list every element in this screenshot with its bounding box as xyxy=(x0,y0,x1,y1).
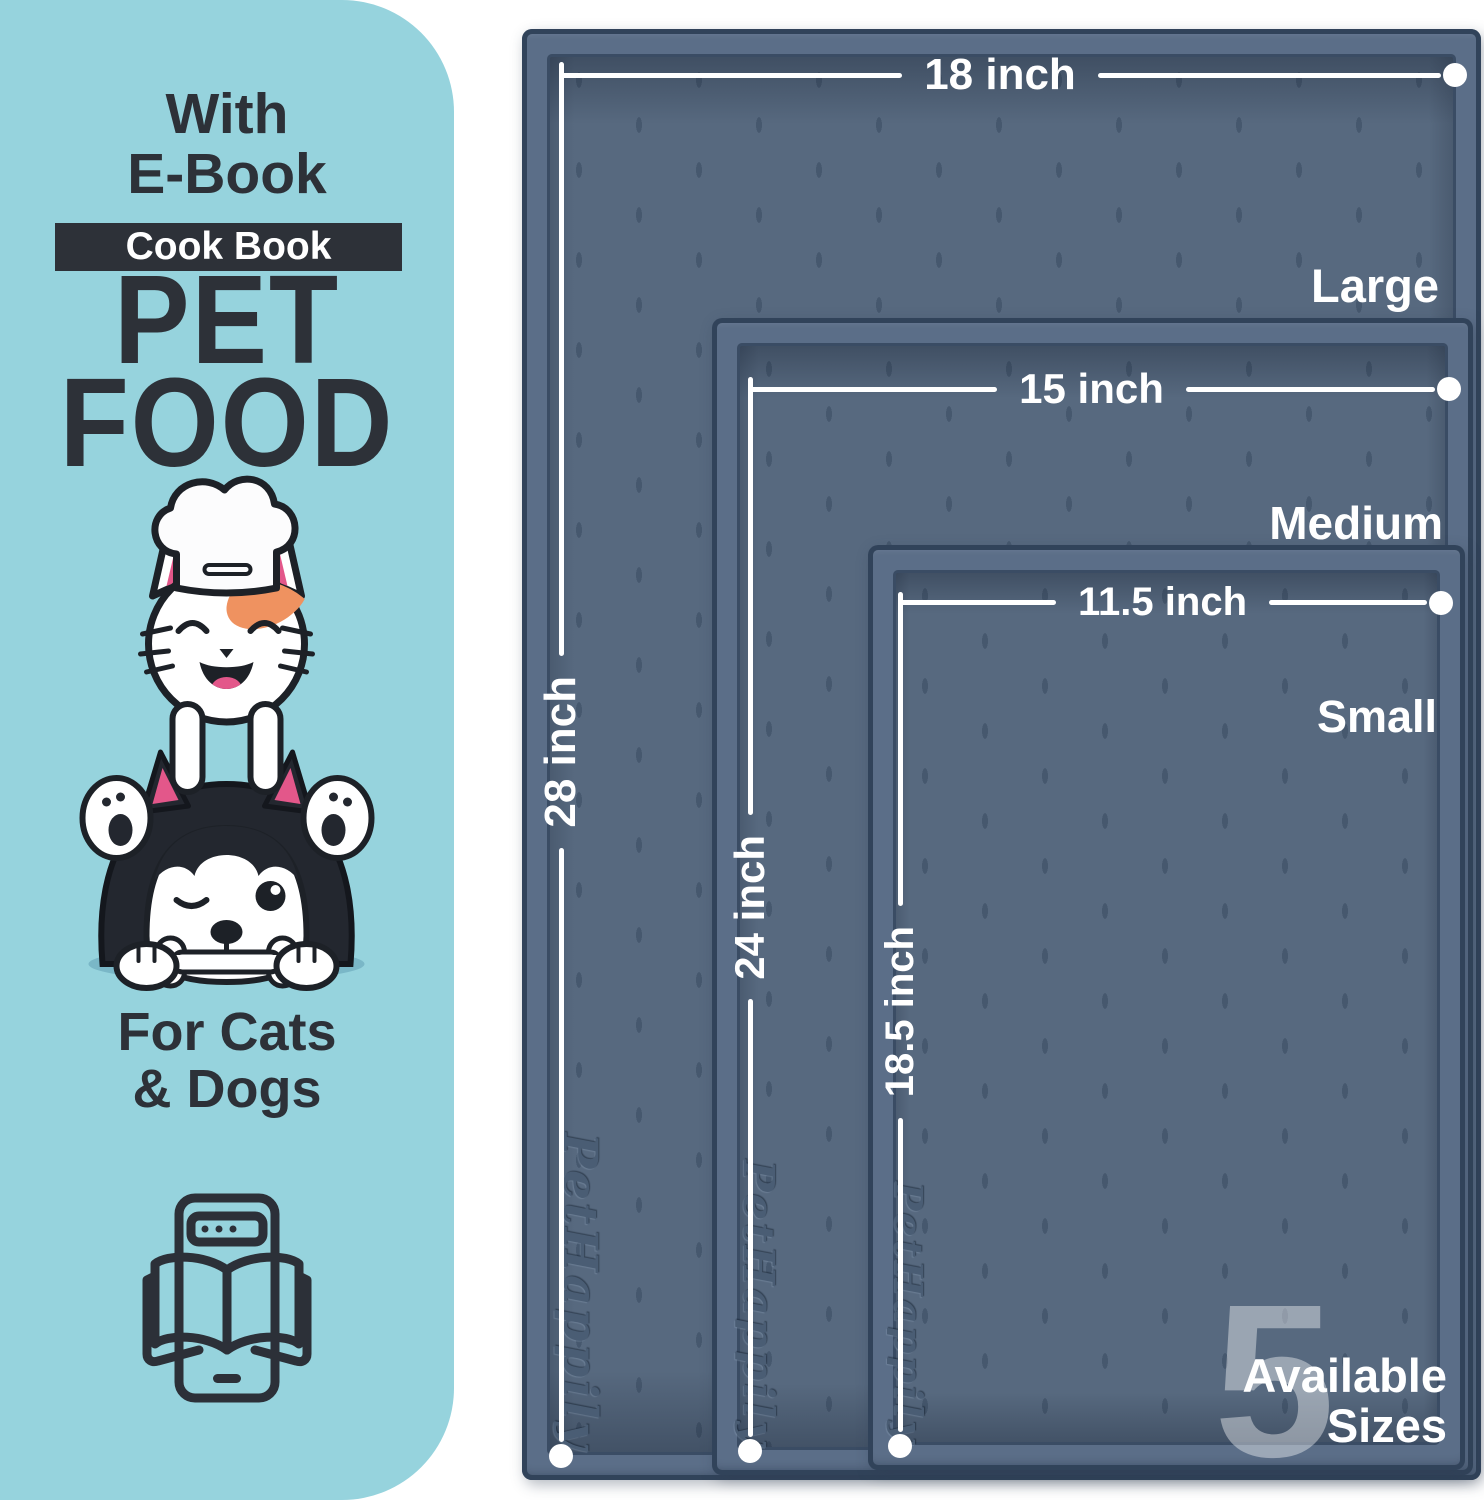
available-sizes-line1: Available xyxy=(1242,1351,1447,1400)
width-label-large: 18 inch xyxy=(924,50,1076,100)
product-infographic: With E-Book Cook Book PET FOOD xyxy=(0,0,1484,1500)
page-title-line2: FOOD xyxy=(23,371,432,474)
width-measure-small: 11.5 inch xyxy=(898,580,1453,625)
length-measure-small: 18.5 inch xyxy=(887,592,913,1458)
width-label-small: 11.5 inch xyxy=(1078,580,1247,625)
measure-endpoint-dot xyxy=(738,1439,762,1463)
measure-endpoint-dot xyxy=(1437,377,1461,401)
size-name-large: Large xyxy=(1311,258,1439,313)
audience-line1: For Cats xyxy=(0,1004,454,1061)
available-sizes-line2: Sizes xyxy=(1242,1401,1447,1450)
ebook-callout: With E-Book xyxy=(0,84,454,205)
page-title: PET FOOD xyxy=(23,268,432,475)
width-measure-medium: 15 inch xyxy=(748,365,1461,413)
available-sizes-label: Available Sizes xyxy=(1242,1351,1447,1450)
width-label-medium: 15 inch xyxy=(1019,365,1164,413)
size-name-small: Small xyxy=(1317,691,1437,743)
length-measure-medium: 24 inch xyxy=(737,377,763,1463)
audience-text: For Cats & Dogs xyxy=(0,1004,454,1118)
audience-line2: & Dogs xyxy=(0,1061,454,1118)
measure-endpoint-dot xyxy=(1443,63,1467,87)
length-label-small: 18.5 inch xyxy=(878,926,923,1097)
measure-endpoint-dot xyxy=(888,1434,912,1458)
length-label-medium: 24 inch xyxy=(726,835,774,980)
measure-endpoint-dot xyxy=(1429,591,1453,615)
width-measure-large: 18 inch xyxy=(559,50,1467,100)
measure-endpoint-dot xyxy=(549,1444,573,1468)
ebook-callout-line2: E-Book xyxy=(0,144,454,204)
size-name-medium: Medium xyxy=(1269,496,1443,550)
ebook-callout-line1: With xyxy=(0,84,454,144)
ebook-icon xyxy=(139,1192,315,1412)
length-label-large: 28 inch xyxy=(536,676,586,828)
cat-dog-chef-illustration xyxy=(55,466,400,996)
mat-small: PetHappily 11.5 inch 18.5 inch Small 5 A… xyxy=(868,545,1465,1470)
left-info-panel: With E-Book Cook Book PET FOOD xyxy=(0,0,454,1500)
length-measure-large: 28 inch xyxy=(548,62,574,1468)
